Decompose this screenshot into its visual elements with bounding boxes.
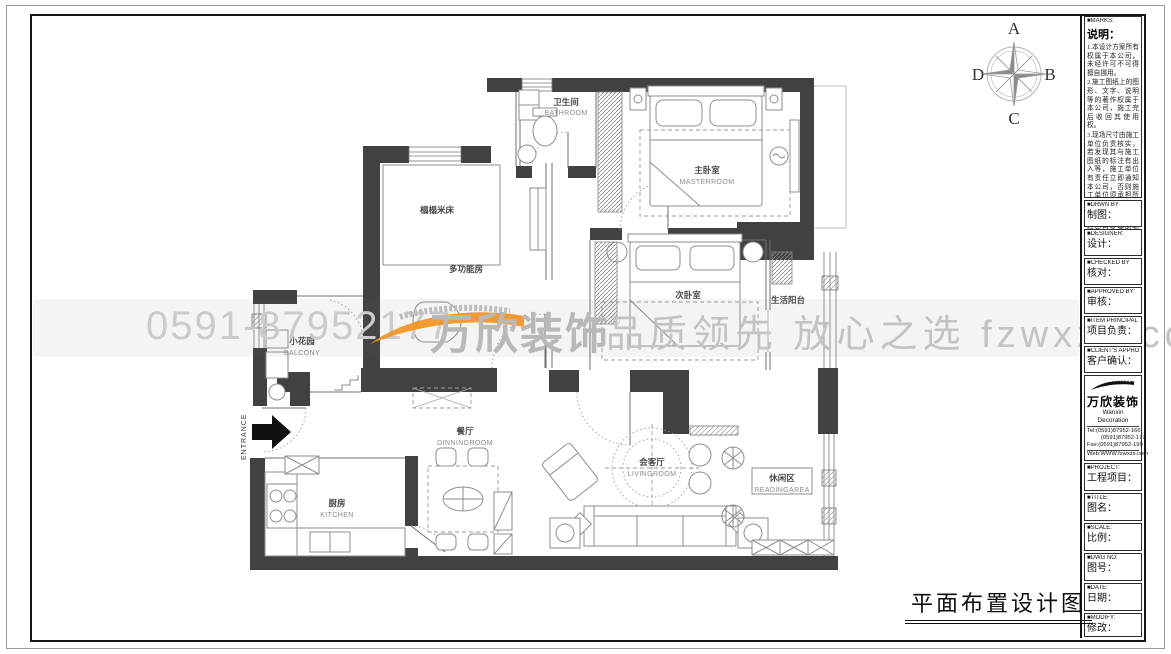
drawing-sheet: ENTRANCE [0,0,1171,654]
inner-border [30,14,1146,642]
